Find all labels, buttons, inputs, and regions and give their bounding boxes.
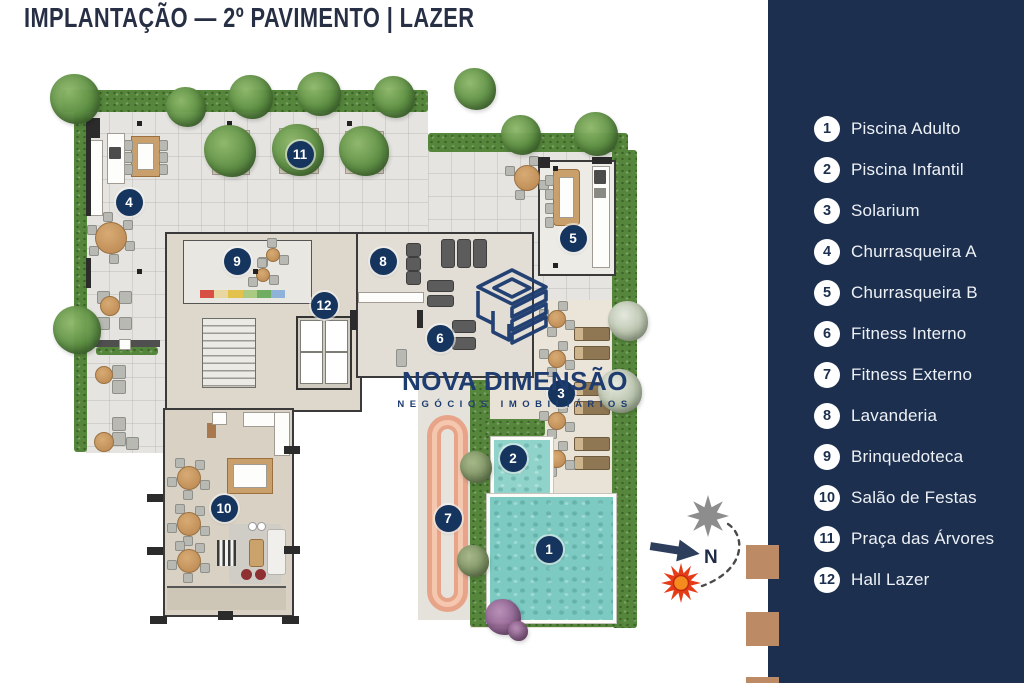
wall-stub xyxy=(284,446,300,454)
legend-item-1: 1Piscina Adulto xyxy=(814,116,994,142)
chair xyxy=(200,480,210,490)
chair xyxy=(396,349,407,367)
equipment xyxy=(406,257,421,271)
plan-marker-7: 7 xyxy=(435,505,462,532)
legend-badge: 4 xyxy=(814,239,840,265)
chair xyxy=(565,320,575,330)
chair xyxy=(119,291,132,304)
round-table xyxy=(95,366,113,384)
lamp xyxy=(248,522,257,531)
tree xyxy=(297,72,341,116)
accent-square xyxy=(746,677,779,683)
legend-label: Piscina Infantil xyxy=(851,160,964,180)
stairs xyxy=(202,318,256,388)
legend-item-8: 8Lavanderia xyxy=(814,403,994,429)
legend-badge: 3 xyxy=(814,198,840,224)
legend-badge: 2 xyxy=(814,157,840,183)
equipment xyxy=(427,280,454,292)
watermark-tagline: NEGÓCIOS IMOBILIÁRIOS xyxy=(385,399,645,410)
lamp xyxy=(257,522,266,531)
chair xyxy=(125,241,135,251)
wall-dot xyxy=(137,269,142,274)
olive-bush xyxy=(457,545,489,577)
chair xyxy=(124,164,133,175)
grill xyxy=(594,170,606,184)
elevator xyxy=(300,320,323,352)
wall-dot xyxy=(137,121,142,126)
chair xyxy=(167,477,177,487)
equipment xyxy=(457,239,471,268)
chair xyxy=(183,490,193,500)
plan-marker-12: 12 xyxy=(311,292,338,319)
sink xyxy=(594,188,606,198)
tree xyxy=(229,75,273,119)
chair xyxy=(124,140,133,151)
legend-badge: 6 xyxy=(814,321,840,347)
wall-dot xyxy=(253,269,258,274)
chair xyxy=(159,140,168,151)
tree xyxy=(166,87,206,127)
legend-item-4: 4Churrasqueira A xyxy=(814,239,994,265)
elevator xyxy=(325,352,348,384)
elevator xyxy=(300,352,323,384)
tree xyxy=(454,68,496,110)
striped-rug xyxy=(217,540,236,566)
chair xyxy=(183,573,193,583)
purple-bush xyxy=(508,621,528,641)
armchair xyxy=(249,539,264,567)
wall-stub xyxy=(150,616,167,624)
sun-lounger xyxy=(574,346,610,360)
plan-marker-2: 2 xyxy=(500,445,527,472)
legend-label: Churrasqueira A xyxy=(851,242,977,262)
legend-label: Churrasqueira B xyxy=(851,283,978,303)
chair xyxy=(124,152,133,163)
chair xyxy=(267,238,277,248)
wall-stub xyxy=(350,310,357,330)
legend-panel: 1Piscina Adulto2Piscina Infantil3Solariu… xyxy=(768,0,1024,683)
legend-badge: 10 xyxy=(814,485,840,511)
legend-badge: 11 xyxy=(814,526,840,552)
legend-badge: 1 xyxy=(814,116,840,142)
round-table xyxy=(514,165,540,191)
olive-bush xyxy=(460,451,492,483)
wall-stub xyxy=(147,547,163,555)
chair xyxy=(112,417,126,431)
tree xyxy=(501,115,541,155)
wall-dot xyxy=(347,121,352,126)
sun-lounger xyxy=(574,456,610,470)
legend-label: Praça das Árvores xyxy=(851,529,994,549)
pouf xyxy=(255,569,266,580)
chair xyxy=(159,152,168,163)
legend-item-3: 3Solarium xyxy=(814,198,994,224)
tree xyxy=(373,76,415,118)
tree xyxy=(574,112,618,156)
chair xyxy=(545,217,554,228)
round-table xyxy=(177,466,201,490)
legend-item-6: 6Fitness Interno xyxy=(814,321,994,347)
round-table xyxy=(548,412,566,430)
salao-balcony xyxy=(167,586,286,610)
tree xyxy=(50,74,100,124)
legend-label: Piscina Adulto xyxy=(851,119,961,139)
plan-marker-8: 8 xyxy=(370,248,397,275)
chair xyxy=(167,523,177,533)
tree xyxy=(53,306,101,354)
chair xyxy=(545,175,554,186)
plan-marker-1: 1 xyxy=(536,536,563,563)
round-table xyxy=(94,432,114,452)
compass-group: N xyxy=(640,478,760,608)
legend-item-7: 7Fitness Externo xyxy=(814,362,994,388)
legend-label: Brinquedoteca xyxy=(851,447,963,467)
pouf xyxy=(241,569,252,580)
equipment xyxy=(406,243,421,257)
chair xyxy=(565,460,575,470)
legend-badge: 7 xyxy=(814,362,840,388)
tree xyxy=(204,125,256,177)
plan-marker-9: 9 xyxy=(224,248,251,275)
legend-item-12: 12Hall Lazer xyxy=(814,567,994,593)
island-top xyxy=(233,464,267,488)
equipment xyxy=(406,271,421,285)
plan-marker-10: 10 xyxy=(211,495,238,522)
play-color-strip xyxy=(200,290,285,298)
table-runner xyxy=(559,177,574,218)
round-table xyxy=(256,268,270,282)
wall-stub xyxy=(86,138,91,216)
console xyxy=(207,423,216,438)
sun-center xyxy=(674,576,689,591)
wall-stub xyxy=(147,494,163,502)
equipment xyxy=(473,239,487,268)
chair xyxy=(200,563,210,573)
plan-marker-6: 6 xyxy=(427,325,454,352)
accent-square xyxy=(746,612,779,646)
plan-marker-4: 4 xyxy=(116,189,143,216)
fridge xyxy=(212,412,227,425)
legend-item-11: 11Praça das Árvores xyxy=(814,526,994,552)
chair xyxy=(515,190,525,200)
round-table xyxy=(100,296,120,316)
chair xyxy=(279,255,289,265)
laundry-counter xyxy=(358,292,424,303)
chair xyxy=(126,437,139,450)
legend-item-5: 5Churrasqueira B xyxy=(814,280,994,306)
wall-stub xyxy=(592,157,612,164)
compass-star-icon xyxy=(687,495,729,537)
chair xyxy=(200,526,210,536)
north-label: N xyxy=(704,547,718,568)
wall-stub xyxy=(218,611,233,620)
round-table xyxy=(266,248,280,262)
chair xyxy=(119,317,132,330)
legend-list: 1Piscina Adulto2Piscina Infantil3Solariu… xyxy=(814,116,994,593)
page-title: IMPLANTAÇÃO — 2º PAVIMENTO | LAZER xyxy=(24,2,474,34)
chair xyxy=(159,164,168,175)
accent-square xyxy=(746,545,779,579)
hedge-kids-pool xyxy=(483,419,545,436)
tree xyxy=(339,126,389,176)
chair xyxy=(112,432,126,446)
round-table xyxy=(177,512,201,536)
legend-badge: 9 xyxy=(814,444,840,470)
watermark-brand: NOVA DIMENSÃO xyxy=(385,366,645,397)
chair xyxy=(112,380,126,394)
legend-badge: 12 xyxy=(814,567,840,593)
chair xyxy=(103,212,113,222)
wall-stub xyxy=(86,258,91,288)
chair xyxy=(565,422,575,432)
wall-stub xyxy=(417,310,423,328)
plan-marker-11: 11 xyxy=(287,141,314,168)
pergola-table xyxy=(119,339,131,350)
chair xyxy=(109,254,119,264)
legend-label: Fitness Interno xyxy=(851,324,966,344)
legend-item-9: 9Brinquedoteca xyxy=(814,444,994,470)
legend-badge: 5 xyxy=(814,280,840,306)
plan-marker-5: 5 xyxy=(560,225,587,252)
legend-label: Lavanderia xyxy=(851,406,937,426)
pale-bush xyxy=(608,301,648,341)
wall-stub xyxy=(282,616,299,624)
legend-badge: 8 xyxy=(814,403,840,429)
legend-label: Salão de Festas xyxy=(851,488,977,508)
legend-label: Solarium xyxy=(851,201,920,221)
legend-label: Hall Lazer xyxy=(851,570,930,590)
legend-item-10: 10Salão de Festas xyxy=(814,485,994,511)
legend-item-2: 2Piscina Infantil xyxy=(814,157,994,183)
stove xyxy=(109,147,121,159)
north-arrow-icon xyxy=(649,535,702,565)
brand-logo-icon xyxy=(468,266,556,360)
chair xyxy=(112,365,126,379)
legend-label: Fitness Externo xyxy=(851,365,972,385)
round-table xyxy=(95,222,127,254)
chair xyxy=(545,189,554,200)
elevator xyxy=(325,320,348,352)
wall-dot xyxy=(553,166,558,171)
wall-stub xyxy=(538,157,550,168)
table-runner xyxy=(137,143,154,170)
sun-lounger xyxy=(574,437,610,451)
equipment xyxy=(427,295,454,307)
chair xyxy=(167,560,177,570)
round-table xyxy=(177,549,201,573)
chair xyxy=(257,258,267,268)
chair xyxy=(545,203,554,214)
sun-lounger xyxy=(574,327,610,341)
wall-stub xyxy=(284,546,300,554)
chair xyxy=(269,275,279,285)
equipment xyxy=(441,239,455,268)
